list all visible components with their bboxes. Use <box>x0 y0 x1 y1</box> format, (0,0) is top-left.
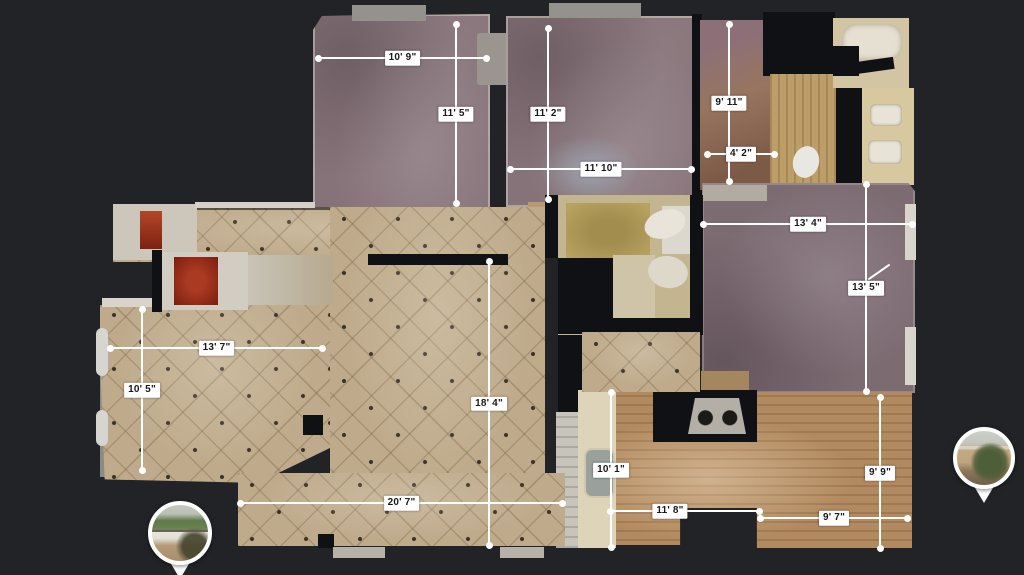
dimension-label: 11' 2" <box>530 107 565 122</box>
dimension-label: 10' 5" <box>124 383 160 398</box>
dimension-label: 13' 5" <box>848 281 884 296</box>
dimension-label: 18' 4" <box>471 396 507 411</box>
pin-photo-thumbnail <box>953 427 1015 489</box>
window-sill <box>905 327 916 385</box>
floor-vent <box>318 534 334 548</box>
stove-top <box>688 398 746 434</box>
bathroom-floor <box>566 203 650 261</box>
doorway-floor-strip <box>701 371 749 392</box>
sink <box>868 140 902 164</box>
dimension-line-office-width: 9' 7" <box>760 517 908 519</box>
dimension-line-bath-width: 4' 2" <box>707 153 775 155</box>
wall <box>763 12 835 76</box>
bathroom-vanity <box>862 88 914 185</box>
sink <box>870 104 902 126</box>
dimension-label: 10' 9" <box>385 51 421 66</box>
dimension-label: 9' 9" <box>865 466 895 481</box>
dimension-label: 10' 1" <box>593 463 629 478</box>
wall-trim <box>195 202 315 208</box>
dimension-line-bedroom1-depth: 11' 5" <box>455 24 457 204</box>
dimension-line-kitchen-width: 11' 8" <box>610 510 760 512</box>
pin-photo-thumbnail <box>148 501 212 565</box>
dimension-label: 20' 7" <box>384 496 420 511</box>
panorama-pin-left[interactable] <box>148 501 212 575</box>
room-living <box>330 207 545 508</box>
dimension-label: 9' 7" <box>819 511 849 526</box>
dimension-line-living-width: 20' 7" <box>240 502 563 504</box>
red-cabinet <box>174 257 218 305</box>
kitchen-tile <box>582 332 700 392</box>
dimension-line-kitchen-depth: 10' 1" <box>610 392 612 548</box>
wall <box>836 88 862 185</box>
door-threshold <box>500 547 544 558</box>
wall <box>558 258 613 334</box>
dimension-label: 13' 4" <box>790 217 826 232</box>
dimension-label: 11' 8" <box>652 504 687 519</box>
dimension-label: 11' 10" <box>581 162 622 177</box>
closet-door-bedroom-2 <box>549 3 641 18</box>
door-threshold <box>333 547 385 558</box>
dimension-label: 11' 5" <box>438 107 473 122</box>
floorplan-canvas: 10' 9" 11' 5" 11' 2" 11' 10" 9' 11" 4' 2… <box>0 0 1024 575</box>
closet-master <box>703 185 767 201</box>
wall <box>690 195 703 335</box>
closet-door-bedroom-1 <box>352 5 426 21</box>
dimension-label: 13' 7" <box>199 341 235 356</box>
dimension-line-bedroom2-depth: 11' 2" <box>547 28 549 200</box>
entry-floor <box>248 255 333 305</box>
wall <box>152 250 162 312</box>
dimension-line-office-depth: 9' 9" <box>879 397 881 549</box>
window-sill <box>905 204 916 260</box>
bay-window <box>96 328 108 376</box>
dimension-line-master-depth: 13' 5" <box>865 184 867 392</box>
dimension-line-dining-depth: 10' 5" <box>141 309 143 471</box>
dimension-label: 4' 2" <box>726 147 756 162</box>
panorama-pin-right[interactable] <box>953 427 1015 507</box>
dimension-line-bedroom1-width: 10' 9" <box>318 57 487 59</box>
dimension-line-master-width: 13' 4" <box>703 223 913 225</box>
laundry-appliance <box>140 211 162 249</box>
bay-window <box>96 410 108 446</box>
dimension-label: 9' 11" <box>711 96 746 111</box>
dimension-line-bedroom2-width: 11' 10" <box>510 168 692 170</box>
wall <box>303 415 323 435</box>
wall <box>545 195 558 258</box>
